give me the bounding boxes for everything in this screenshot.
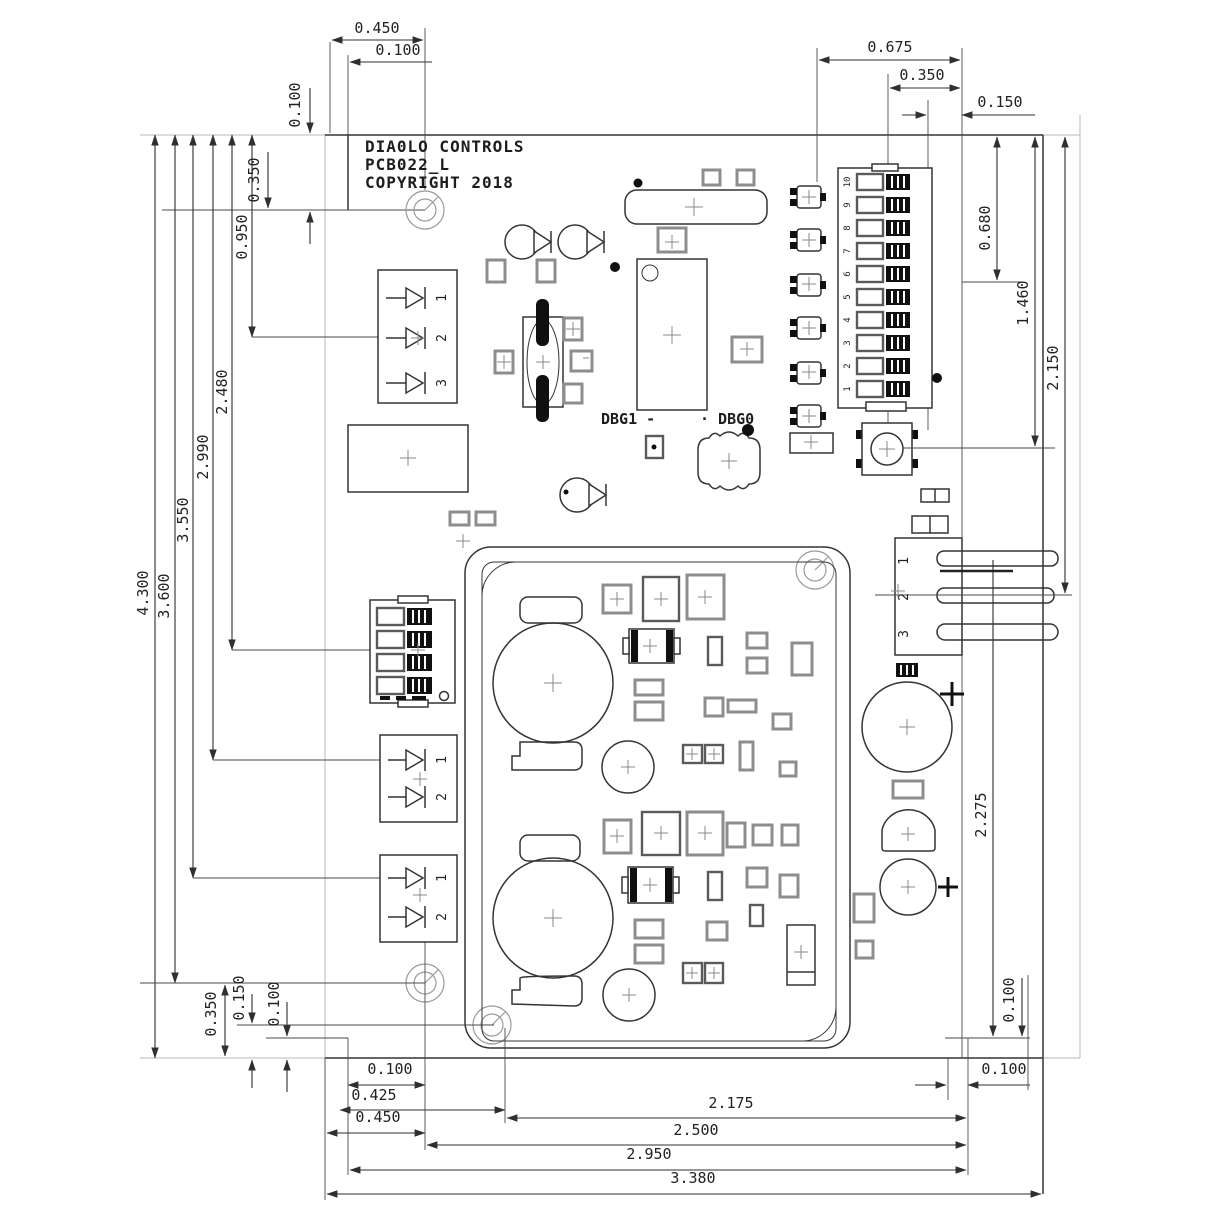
- dim-0100-bl: 0.100: [265, 981, 283, 1026]
- dim-3600: 3.600: [155, 573, 173, 618]
- dbg1-label: DBG1 -: [601, 410, 655, 428]
- svg-text:2: 2: [843, 363, 853, 368]
- dip-switch-10: 10 9 8 7 6 5 4 3 2 1: [838, 164, 942, 411]
- dim-0450-top: 0.450: [354, 19, 399, 37]
- dim-0350-right: 0.350: [899, 66, 944, 84]
- terminal-mid-pin-1: 1: [435, 756, 450, 764]
- drawing-svg: 0.450 0.100 0.100 0.350 4.300 3.600 3.55…: [0, 0, 1214, 1214]
- connector-pin-2: 2: [897, 593, 912, 601]
- terminal-block-bottom: 1 2: [380, 855, 457, 942]
- connector-pin-3: 3: [897, 630, 912, 638]
- terminal-top-pin-2: 2: [435, 334, 450, 342]
- diode-round-1: [505, 225, 551, 259]
- svg-text:5: 5: [843, 294, 853, 299]
- dim-4300: 4.300: [134, 570, 152, 615]
- dim-2500: 2.500: [673, 1121, 718, 1139]
- connector-pin-1: 1: [897, 557, 912, 565]
- terminal-mid-pin-2: 2: [435, 793, 450, 801]
- dim-0100-righth: 0.100: [981, 1060, 1026, 1078]
- pcb-dimension-drawing: 0.450 0.100 0.100 0.350 4.300 3.600 3.55…: [0, 0, 1214, 1214]
- dip-switch-4: [370, 596, 455, 707]
- mounting-hole-module-top: [796, 551, 834, 589]
- power-module: [465, 547, 850, 1048]
- diode-round-2: [558, 225, 604, 259]
- svg-text:4: 4: [843, 317, 853, 322]
- dim-0100-bottom: 0.100: [367, 1060, 412, 1078]
- svg-text:9: 9: [843, 202, 853, 207]
- title-line3: COPYRIGHT 2018: [365, 173, 514, 192]
- dim-0675: 0.675: [867, 38, 912, 56]
- svg-text:10: 10: [843, 177, 853, 188]
- right-cap-column: [854, 663, 964, 958]
- dim-3380: 3.380: [670, 1169, 715, 1187]
- svg-text:7: 7: [843, 248, 853, 253]
- title-line1: DIA0LO CONTROLS: [365, 137, 525, 156]
- dim-2990: 2.990: [194, 434, 212, 479]
- dims-top-left: [268, 28, 432, 244]
- mounting-holes: [406, 191, 834, 1044]
- dim-2480: 2.480: [213, 369, 231, 414]
- terminal-top-pin-3: 3: [435, 379, 450, 387]
- diode-round-3: [560, 478, 606, 512]
- terminal-top-pin-1: 1: [435, 294, 450, 302]
- dim-2950: 2.950: [626, 1145, 671, 1163]
- dim-0680: 0.680: [976, 205, 994, 250]
- fiducial-dot: [932, 373, 942, 383]
- dim-0100-rightv: 0.100: [1000, 977, 1018, 1022]
- dim-0150: 0.150: [977, 93, 1022, 111]
- dim-0450-bottom: 0.450: [355, 1108, 400, 1126]
- title-line2: PCB022_L: [365, 155, 450, 174]
- dim-0100-topv: 0.100: [286, 82, 304, 127]
- dim-3550: 3.550: [174, 497, 192, 542]
- silkscreen-title: DIA0LO CONTROLS PCB022_L COPYRIGHT 2018: [365, 137, 525, 192]
- terminal-bot-pin-1: 1: [435, 874, 450, 882]
- svg-text:3: 3: [843, 340, 853, 345]
- dim-0350-bl: 0.350: [202, 991, 220, 1036]
- transistor-column: [790, 186, 826, 427]
- dim-0425: 0.425: [351, 1086, 396, 1104]
- terminal-bot-pin-2: 2: [435, 913, 450, 921]
- dim-2175: 2.175: [708, 1094, 753, 1112]
- dim-2150: 2.150: [1044, 345, 1062, 390]
- svg-text:1: 1: [843, 386, 853, 391]
- dim-2275: 2.275: [972, 792, 990, 837]
- dim-1460: 1.460: [1014, 280, 1032, 325]
- dim-0950: 0.950: [233, 214, 251, 259]
- svg-text:8: 8: [843, 225, 853, 230]
- dim-0150-bl: 0.150: [230, 975, 248, 1020]
- svg-text:6: 6: [843, 271, 853, 276]
- dim-0350-topv: 0.350: [245, 157, 263, 202]
- dim-0100-top: 0.100: [375, 41, 420, 59]
